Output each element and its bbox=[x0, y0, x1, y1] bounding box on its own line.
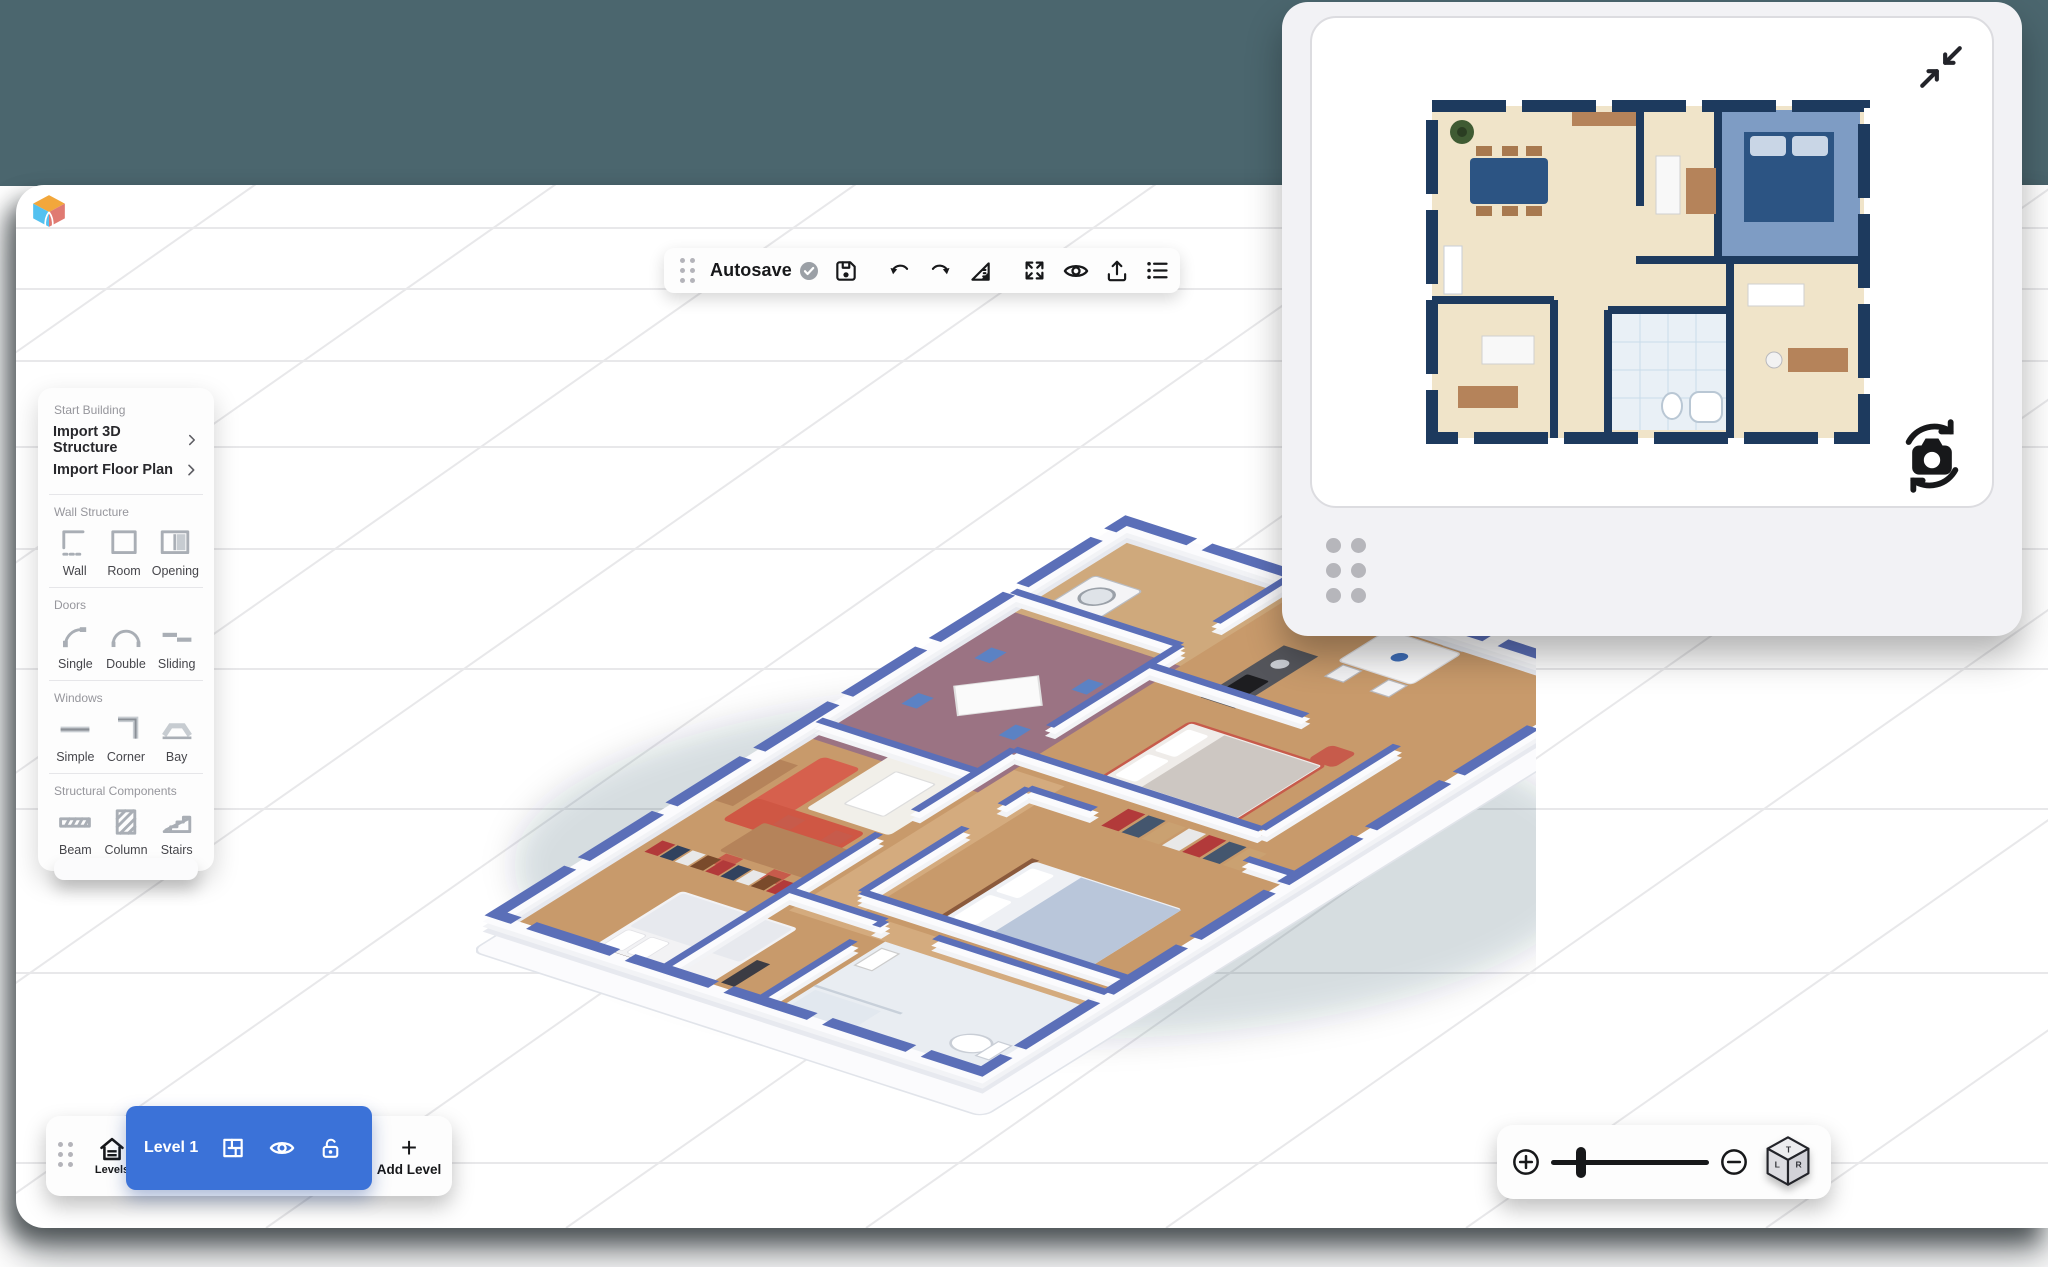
minimap-card bbox=[1310, 16, 1994, 508]
tool-simple-window[interactable]: Simple bbox=[53, 713, 98, 764]
tool-corner-window[interactable]: Corner bbox=[104, 713, 149, 764]
set-square-icon bbox=[967, 258, 993, 284]
tool-single-door[interactable]: Single bbox=[53, 620, 98, 671]
minimap-drag-handle[interactable] bbox=[1326, 538, 1366, 603]
main-toolbar: Autosave bbox=[664, 248, 1180, 293]
list-icon bbox=[1144, 257, 1171, 284]
section-label: Doors bbox=[54, 598, 199, 612]
single-door-icon bbox=[55, 620, 95, 652]
levels-drag-handle[interactable] bbox=[58, 1142, 74, 1168]
tool-stairs[interactable]: Stairs bbox=[154, 806, 199, 857]
fit-view-button[interactable] bbox=[1021, 256, 1048, 286]
panel-divider bbox=[49, 494, 203, 495]
rotate-camera-button[interactable] bbox=[1890, 414, 1974, 498]
zoom-in-icon bbox=[1511, 1144, 1541, 1180]
stairs-icon bbox=[157, 806, 197, 838]
simple-window-icon bbox=[55, 713, 95, 745]
double-door-icon bbox=[106, 620, 146, 652]
import-floor-plan-item[interactable]: Import Floor Plan bbox=[53, 455, 199, 485]
chevron-right-icon bbox=[183, 462, 199, 478]
redo-icon bbox=[927, 258, 953, 284]
room-icon bbox=[104, 527, 144, 559]
tool-opening[interactable]: Opening bbox=[152, 527, 199, 578]
rotate-camera-icon bbox=[1890, 414, 1974, 498]
section-label: Windows bbox=[54, 691, 199, 705]
opening-icon bbox=[155, 527, 195, 559]
list-button[interactable] bbox=[1144, 256, 1171, 286]
save-icon bbox=[833, 258, 859, 284]
corner-window-icon bbox=[106, 713, 146, 745]
upload-icon bbox=[1104, 258, 1130, 284]
eye-icon bbox=[1062, 257, 1090, 285]
build-panel: Start Building Import 3D Structure Impor… bbox=[38, 388, 214, 871]
section-label: Start Building bbox=[54, 403, 199, 417]
view-cube-button[interactable]: T L R bbox=[1759, 1132, 1817, 1193]
zoom-in-button[interactable] bbox=[1511, 1147, 1541, 1177]
zoom-out-button[interactable] bbox=[1719, 1147, 1749, 1177]
active-level-label: Level 1 bbox=[144, 1139, 198, 1157]
tool-column[interactable]: Column bbox=[104, 806, 149, 857]
svg-text:T: T bbox=[1786, 1144, 1792, 1154]
level-visibility-icon[interactable] bbox=[268, 1134, 296, 1162]
plus-icon: + bbox=[401, 1136, 417, 1160]
tool-sliding-door[interactable]: Sliding bbox=[154, 620, 199, 671]
export-button[interactable] bbox=[1104, 256, 1130, 286]
autosave-label: Autosave bbox=[710, 260, 792, 281]
house-levels-icon bbox=[98, 1136, 126, 1162]
collapse-icon bbox=[1916, 42, 1966, 92]
saved-check-icon bbox=[799, 261, 819, 281]
svg-text:L: L bbox=[1775, 1159, 1780, 1169]
section-label: Structural Components bbox=[54, 784, 199, 798]
tool-double-door[interactable]: Double bbox=[104, 620, 149, 671]
cube-logo-icon bbox=[30, 192, 68, 230]
import-3d-structure-item[interactable]: Import 3D Structure bbox=[53, 425, 199, 455]
floorplan-2d-preview[interactable] bbox=[1422, 96, 1874, 448]
zoom-bar: T L R bbox=[1497, 1125, 1831, 1199]
toolbar-drag-handle[interactable] bbox=[680, 258, 696, 284]
redo-button[interactable] bbox=[927, 256, 953, 286]
floorplanner-app: Autosave bbox=[0, 0, 2048, 1267]
app-logo[interactable] bbox=[30, 192, 68, 230]
svg-text:R: R bbox=[1796, 1159, 1803, 1169]
wall-icon bbox=[55, 527, 95, 559]
panel-divider bbox=[49, 587, 203, 588]
lock-open-icon[interactable] bbox=[318, 1136, 343, 1161]
view-cube-icon: T L R bbox=[1759, 1132, 1817, 1190]
section-label: Wall Structure bbox=[54, 505, 199, 519]
save-button[interactable] bbox=[833, 256, 859, 286]
visibility-button[interactable] bbox=[1062, 256, 1090, 286]
expand-icon bbox=[1021, 257, 1048, 284]
tool-wall[interactable]: Wall bbox=[53, 527, 96, 578]
autosave-status: Autosave bbox=[710, 260, 819, 281]
panel-divider bbox=[49, 680, 203, 681]
tool-room[interactable]: Room bbox=[102, 527, 145, 578]
zoom-slider[interactable] bbox=[1551, 1160, 1709, 1165]
undo-button[interactable] bbox=[887, 256, 913, 286]
zoom-slider-handle[interactable] bbox=[1576, 1147, 1586, 1178]
chevron-right-icon bbox=[184, 432, 199, 448]
measure-button[interactable] bbox=[967, 256, 993, 286]
beam-icon bbox=[55, 806, 95, 838]
floorplan-icon[interactable] bbox=[220, 1135, 246, 1161]
bay-window-icon bbox=[157, 713, 197, 745]
sliding-door-icon bbox=[157, 620, 197, 652]
column-icon bbox=[106, 806, 146, 838]
minimap-panel bbox=[1282, 2, 2022, 636]
collapse-minimap-button[interactable] bbox=[1916, 42, 1966, 92]
panel-divider bbox=[49, 773, 203, 774]
tool-beam[interactable]: Beam bbox=[53, 806, 98, 857]
undo-icon bbox=[887, 258, 913, 284]
add-level-button[interactable]: + Add Level bbox=[372, 1124, 446, 1188]
active-level-tab[interactable]: Level 1 bbox=[126, 1106, 372, 1190]
tool-bay-window[interactable]: Bay bbox=[154, 713, 199, 764]
zoom-out-icon bbox=[1719, 1144, 1749, 1180]
